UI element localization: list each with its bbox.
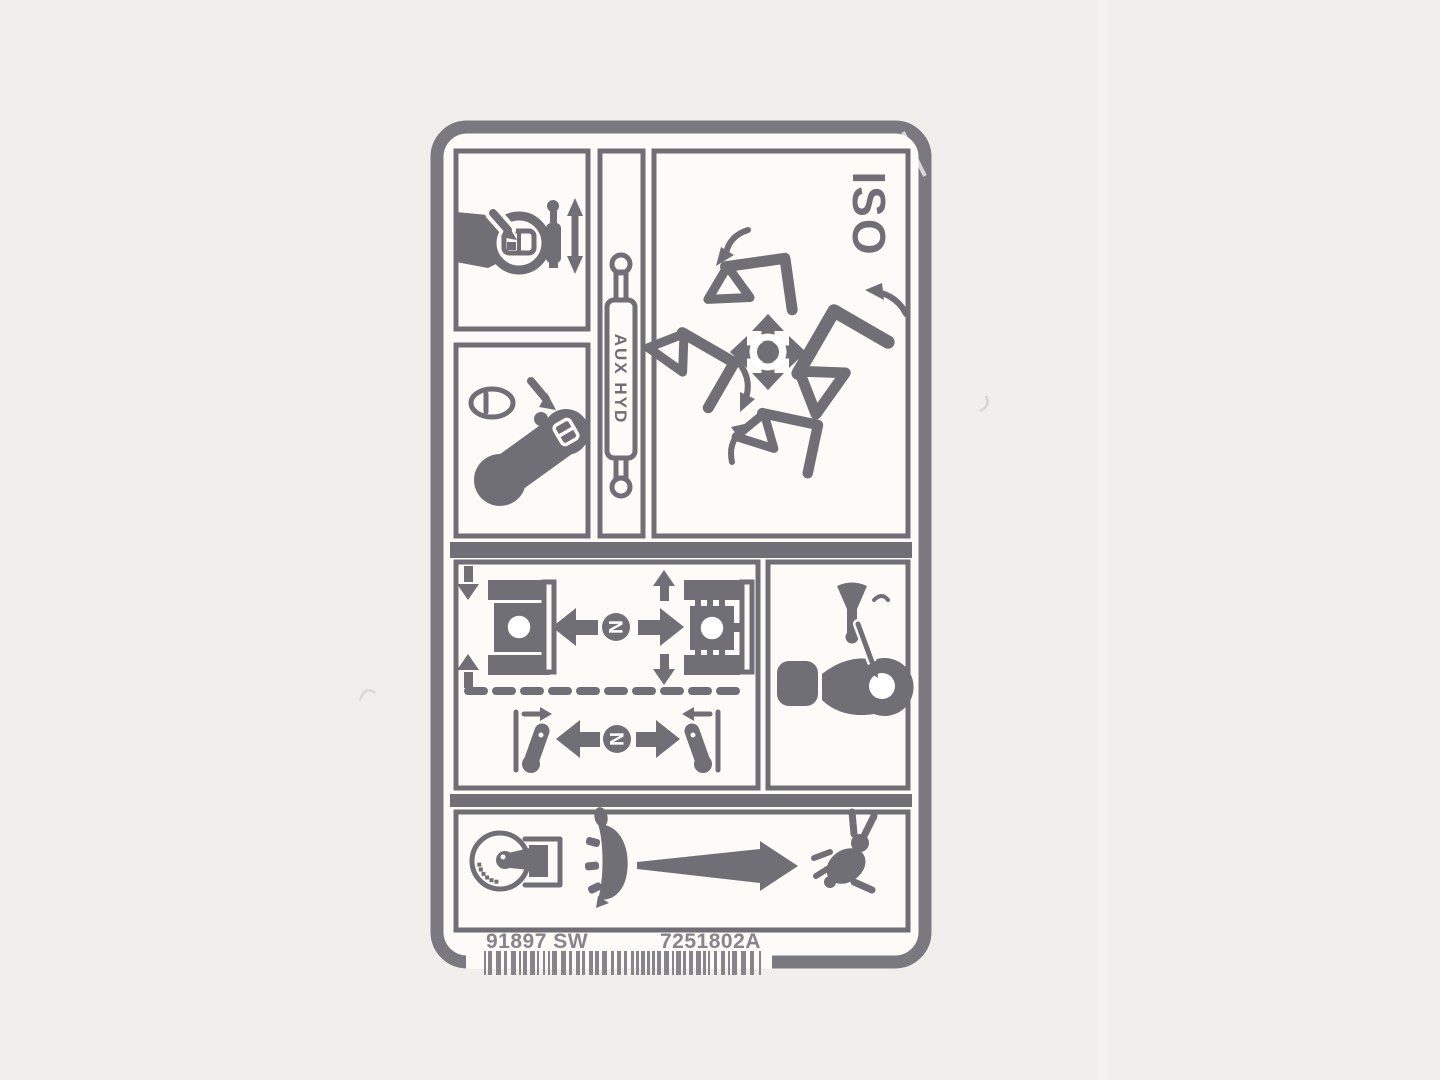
- travel-panel: N: [456, 562, 758, 788]
- iso-panel: ISO: [637, 151, 908, 536]
- aux-hyd-strip: AUX HYD: [600, 151, 643, 536]
- part-number-right: 7251802A: [660, 930, 761, 953]
- throttle-panel: [456, 806, 908, 930]
- iso-label: ISO: [843, 171, 895, 256]
- part-number-left: 91897 SW: [486, 930, 588, 953]
- section-divider: [450, 794, 912, 807]
- svg-text:N: N: [605, 732, 626, 746]
- machine-top-view-icon-left: [488, 580, 554, 675]
- aux-hyd-label: AUX HYD: [611, 334, 630, 425]
- neutral-badge: N: [603, 725, 631, 753]
- horn-panel: [768, 562, 914, 788]
- detent-button-icon: [471, 389, 513, 417]
- neutral-badge: N: [602, 613, 630, 641]
- grip-rocker-panel: [456, 151, 588, 329]
- scanned-decal-photo: AUX HYD ISO: [0, 0, 1440, 1080]
- joystick-detent-panel: [456, 345, 589, 536]
- scan-seam: [1098, 0, 1108, 1080]
- svg-text:N: N: [604, 620, 625, 634]
- machine-top-view-icon-right: [684, 580, 752, 675]
- section-divider: [450, 542, 912, 558]
- control-pattern-decal: AUX HYD ISO: [437, 127, 925, 975]
